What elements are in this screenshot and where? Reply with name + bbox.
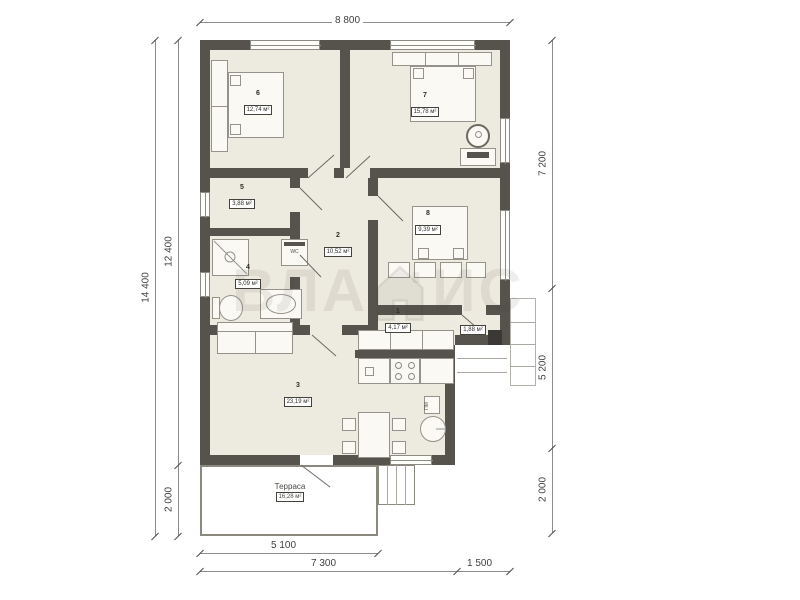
wall-segment [340, 40, 350, 168]
window [390, 40, 475, 50]
room-label-3: 3 23,19 м² [276, 382, 320, 408]
room-label-2: 2 10,52 м² [318, 232, 358, 258]
wall-segment [200, 297, 210, 465]
dimension-bottom-side: 1 500 [464, 558, 495, 569]
room-label-5: 5 3,88 м² [222, 184, 262, 210]
room-label-6: 6 12,74 м² [238, 90, 278, 116]
chair [342, 441, 356, 454]
room-label-4: 4 5,09 м² [228, 264, 268, 290]
chair [392, 418, 406, 431]
window [200, 192, 210, 217]
room-number: 2 [318, 232, 358, 240]
terrace-label: Терраса 16,28 м² [262, 482, 318, 502]
room-area: 3,88 м² [229, 199, 254, 209]
chair [392, 441, 406, 454]
wall-segment [355, 350, 445, 358]
window [500, 118, 510, 163]
round-sink [420, 416, 446, 442]
room-number: 7 [405, 92, 445, 100]
window [250, 40, 320, 50]
floor-plan-canvas: ВЛА ИС [0, 0, 800, 600]
wardrobe [211, 60, 228, 152]
room-number: 6 [238, 90, 278, 98]
room-area: 15,78 м² [411, 107, 440, 117]
room-area: 23,19 м² [284, 397, 313, 407]
wall-segment [290, 178, 300, 188]
room-number: 5 [222, 184, 262, 192]
room-area: 10,52 м² [324, 247, 353, 257]
dimension-line-bottom-main [200, 571, 510, 572]
room-number: 4 [228, 264, 268, 272]
annex-label: 1,88 м² [455, 318, 491, 336]
stove-burners [390, 358, 420, 384]
room-area: 12,74 м² [244, 105, 273, 115]
terrace-name: Терраса [262, 482, 318, 491]
kitchen-sink-cabinet [358, 358, 390, 384]
terrace-area: 16,28 м² [276, 492, 305, 502]
stove-cabinet [460, 148, 496, 166]
window [200, 272, 210, 297]
washing-machine-label: WC [282, 249, 307, 255]
dimension-line-left-lower [178, 465, 179, 536]
chair [342, 418, 356, 431]
wardrobe [392, 52, 492, 66]
dining-table [358, 412, 390, 458]
room-number: 8 [408, 210, 448, 218]
dimension-right-upper: 7 200 [538, 139, 549, 189]
wall-segment [200, 228, 290, 236]
dimension-top: 8 800 [332, 15, 363, 26]
dishwasher-label: ПМ [424, 402, 430, 410]
dimension-line-left-outer [155, 40, 156, 536]
sofa [217, 322, 293, 354]
room-area: 5,09 м² [235, 279, 260, 289]
room-number: 1 [378, 308, 418, 316]
room-label-8: 8 9,39 м² [408, 210, 448, 236]
window [390, 455, 432, 465]
room-number: 3 [276, 382, 320, 390]
room-area: 4,17 м² [385, 323, 410, 333]
dimension-right-middle: 5 200 [538, 343, 549, 393]
room-label-7: 7 15,78 м² [405, 92, 445, 118]
room-area: 9,39 м² [415, 225, 440, 235]
wall-segment [334, 168, 344, 178]
wall-segment [320, 40, 390, 50]
kitchen-cabinet [420, 358, 454, 384]
dimension-right-lower: 2 000 [538, 465, 549, 515]
dimension-bottom-main: 7 300 [308, 558, 339, 569]
watermark-text-right: ИС [432, 256, 524, 325]
wall-segment [368, 178, 378, 196]
pot-icon [466, 124, 490, 148]
wall-segment [200, 168, 308, 178]
dishwasher: ПМ [424, 396, 440, 414]
dimension-left-upper: 12 400 [164, 227, 175, 277]
annex-area: 1,88 м² [460, 325, 485, 335]
wall-segment [200, 217, 210, 272]
wall-segment [370, 168, 510, 178]
dimension-line-left-upper [178, 40, 179, 465]
dimension-left-lower: 2 000 [164, 475, 175, 525]
room-label-1: 1 4,17 м² [378, 308, 418, 334]
dimension-left-outer: 14 400 [141, 263, 152, 313]
dimension-line-bottom-terrace [200, 553, 378, 554]
wall-segment [500, 40, 510, 118]
wall-segment [200, 455, 300, 465]
dimension-bottom-terrace: 5 100 [268, 540, 299, 551]
